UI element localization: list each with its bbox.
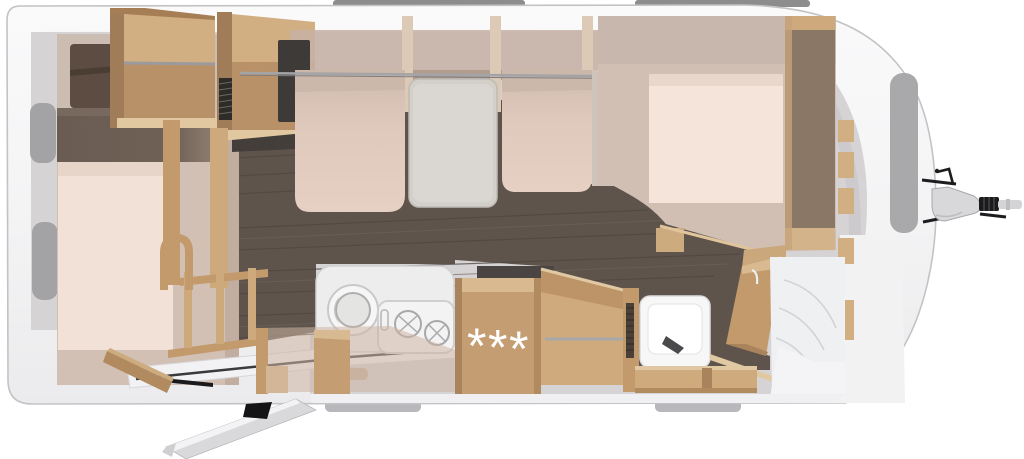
svg-text:*: * xyxy=(467,318,486,374)
svg-text:*: * xyxy=(509,321,528,377)
svg-text:*: * xyxy=(488,320,507,376)
